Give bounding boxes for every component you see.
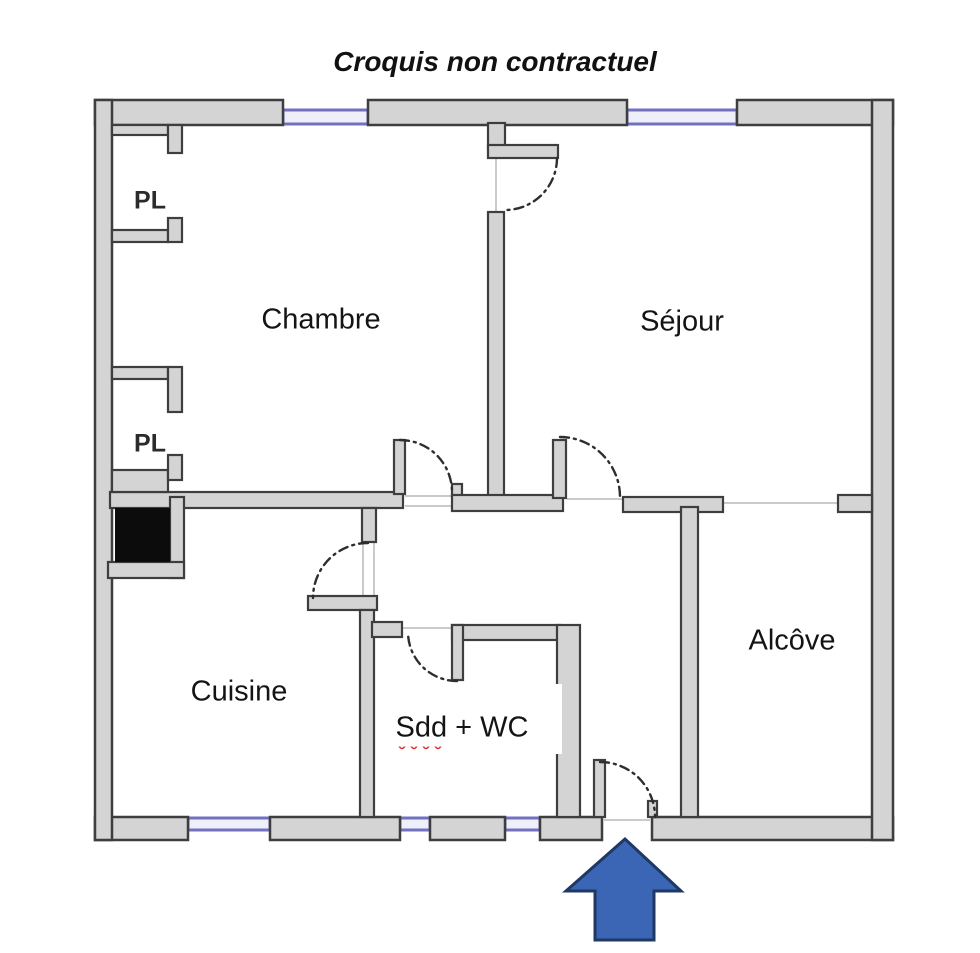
room-label-cuisine: Cuisine [191,676,288,709]
inner-wall [362,508,376,542]
inner-wall [168,367,182,412]
inner-wall [372,622,402,637]
room-label-sejour: Séjour [640,306,724,339]
inner-wall [488,212,504,497]
inner-wall [112,230,168,242]
plan-title: Croquis non contractuel [333,46,657,78]
window [505,818,540,830]
inner-wall [112,367,168,379]
window [627,110,737,124]
room-label-sdd-wc: Sdd + WC [390,710,535,747]
window [188,818,270,830]
inner-wall [838,495,872,512]
chimney-block [115,508,170,562]
outer-wall [270,817,400,840]
inner-wall [112,470,168,492]
room-label-alcove: Alcôve [748,625,835,658]
window [283,110,368,124]
outer-wall [872,100,893,840]
floorplan-svg [0,0,980,953]
inner-wall [452,625,560,640]
inner-wall [488,145,558,158]
door-swing-arc [400,440,452,492]
outer-wall [430,817,505,840]
inner-wall [594,760,605,817]
window [400,818,430,830]
entrance-arrow [566,839,681,940]
outer-wall [737,100,893,125]
inner-wall [394,440,405,494]
outer-wall [540,817,602,840]
door-swing-arc [313,543,368,598]
door-swing-arc [505,158,557,210]
inner-wall [360,610,374,817]
door-swing-arc [560,437,620,497]
outer-wall [652,817,893,840]
inner-wall [681,507,698,817]
inner-wall [168,455,182,480]
inner-wall [623,497,723,512]
inner-wall [112,125,168,135]
inner-wall [168,125,182,153]
outer-wall [95,100,283,125]
door-swing-arc [600,762,655,817]
inner-wall [168,218,182,242]
inner-wall [553,440,566,498]
closet-label-pl-1: PL [134,187,166,216]
inner-wall [108,562,184,578]
inner-wall [452,495,563,511]
inner-wall [110,492,403,508]
inner-wall [452,625,463,680]
inner-wall [308,596,377,610]
door-swing-arc [408,632,457,681]
closet-label-pl-2: PL [134,430,166,459]
room-label-chambre: Chambre [261,304,380,337]
floor-plan: Croquis non contractuel PL PL Chambre Sé… [0,0,980,953]
outer-wall [368,100,627,125]
outer-wall [95,100,112,840]
